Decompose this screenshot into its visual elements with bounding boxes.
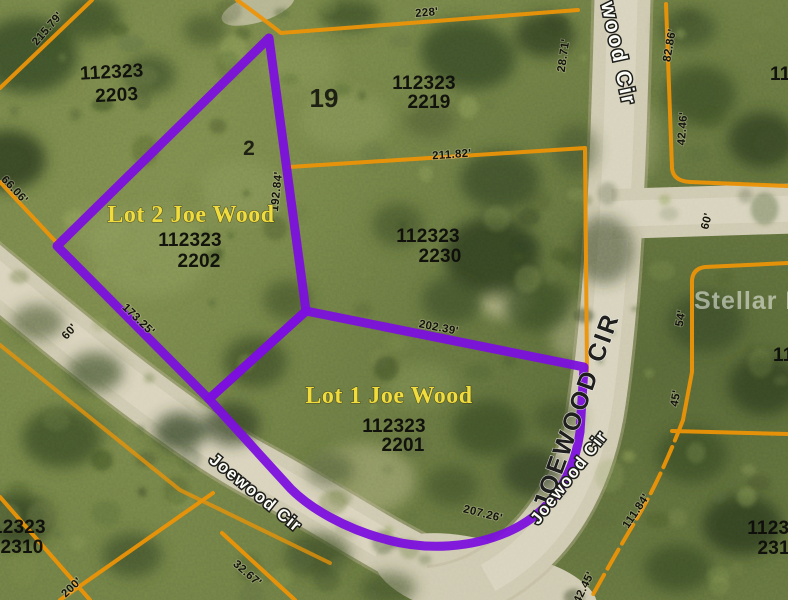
lot-1-title: Lot 1 Joe Wood bbox=[305, 383, 472, 409]
parcel-id: 112323 bbox=[392, 73, 456, 94]
parcel-id: 112323 bbox=[362, 416, 426, 437]
parcel-id-partial: 11 bbox=[770, 64, 788, 85]
parcel-id-partial: 11 bbox=[773, 345, 788, 366]
parcel-id: 2202 bbox=[177, 251, 220, 272]
stellar-mls-watermark: Stellar MLS™ bbox=[694, 287, 788, 315]
parcel-id: 112323 bbox=[396, 226, 460, 247]
parcel-id: 2219 bbox=[407, 92, 450, 113]
parcel-id: 2201 bbox=[381, 435, 424, 456]
parcel-id: 112323 bbox=[0, 517, 46, 538]
parcel-id: 2203 bbox=[95, 84, 139, 107]
block-number: 2 bbox=[243, 137, 255, 160]
lot-2-title: Lot 2 Joe Wood bbox=[107, 202, 274, 228]
map-canvas: 228' 215.79' 211.82' 202.39' 207.26' 192… bbox=[0, 0, 788, 600]
aerial-plat-map: 228' 215.79' 211.82' 202.39' 207.26' 192… bbox=[0, 0, 788, 600]
parcel-id: 112323 bbox=[158, 230, 222, 251]
parcel-id: 2230 bbox=[418, 246, 461, 267]
parcel-id: 112323 bbox=[79, 60, 144, 84]
parcel-line-road-west bbox=[585, 148, 587, 372]
dimension-label: 228' bbox=[415, 6, 439, 20]
parcel-id: 2310 bbox=[0, 537, 43, 558]
block-number: 19 bbox=[310, 83, 339, 113]
dimension-label: 42.46' bbox=[676, 112, 690, 146]
parcel-id: 112323 bbox=[747, 518, 788, 539]
parcel-id: 2310 bbox=[757, 538, 788, 559]
